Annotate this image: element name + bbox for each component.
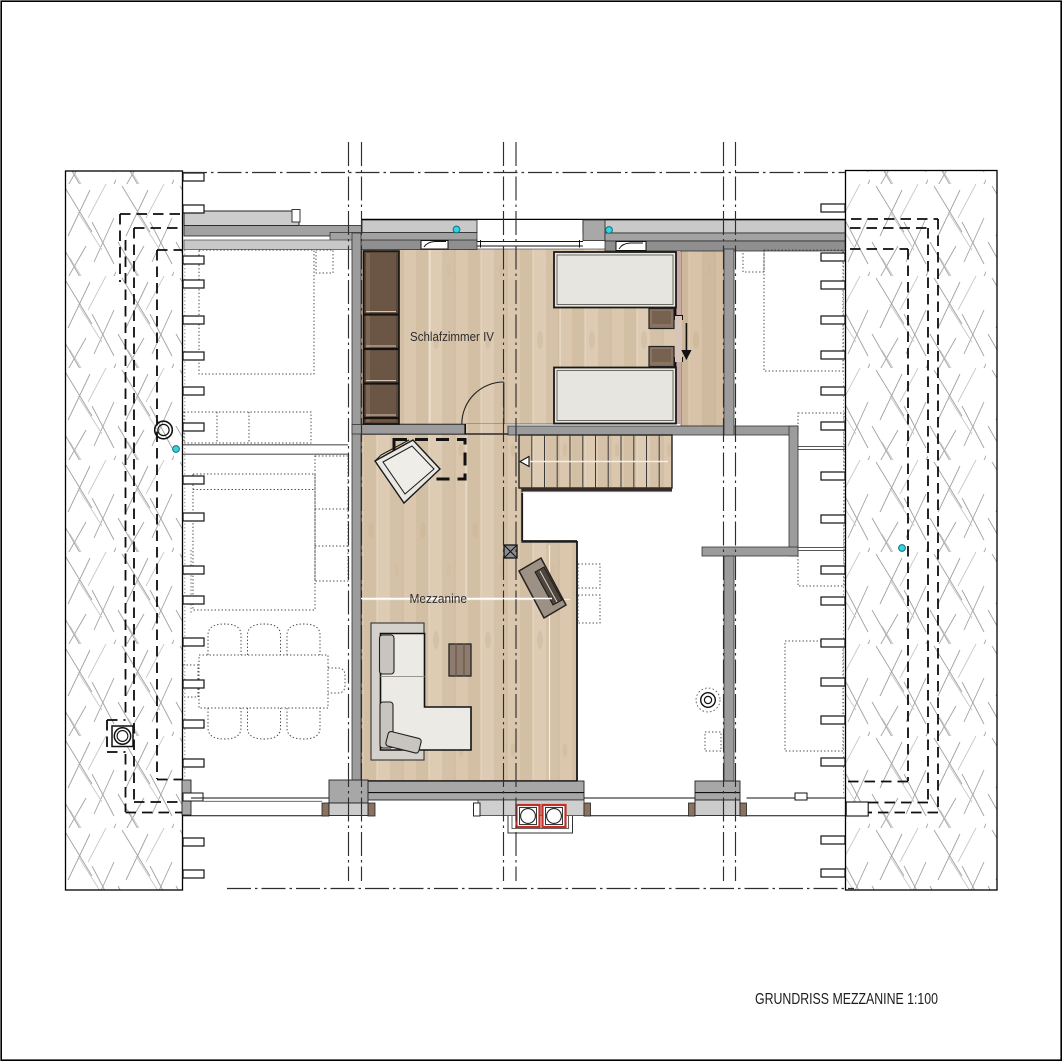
svg-text:Mezzanine: Mezzanine	[410, 591, 468, 606]
svg-text:Schlafzimmer IV: Schlafzimmer IV	[410, 329, 494, 344]
svg-text:GRUNDRISS MEZZANINE 1:100: GRUNDRISS MEZZANINE 1:100	[755, 991, 938, 1008]
